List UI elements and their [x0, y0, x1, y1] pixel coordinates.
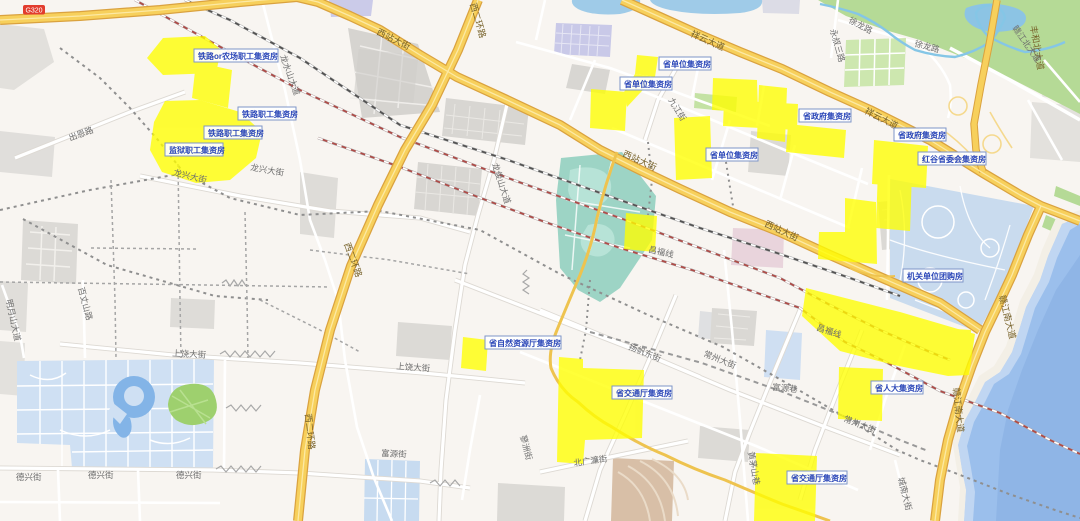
svg-text:德兴街: 德兴街	[88, 470, 114, 480]
svg-text:省政府集资房: 省政府集资房	[897, 130, 946, 140]
svg-text:德兴街: 德兴街	[176, 470, 202, 480]
svg-text:德兴街: 德兴街	[16, 472, 42, 482]
svg-text:省单位集资房: 省单位集资房	[709, 150, 758, 160]
svg-text:省人大集资房: 省人大集资房	[874, 383, 923, 393]
svg-text:富源街: 富源街	[381, 448, 407, 459]
svg-text:铁路职工集资房: 铁路职工集资房	[242, 109, 298, 119]
svg-text:红谷省委会集资房: 红谷省委会集资房	[922, 154, 986, 164]
svg-text:铁路or农场职工集资房: 铁路or农场职工集资房	[198, 51, 278, 61]
svg-text:省交通厅集资房: 省交通厅集资房	[615, 388, 672, 398]
svg-text:监狱职工集资房: 监狱职工集资房	[169, 145, 225, 155]
svg-text:铁路职工集资房: 铁路职工集资房	[208, 128, 264, 138]
svg-text:省交通厅集资房: 省交通厅集资房	[790, 473, 847, 483]
svg-text:省自然资源厅集资房: 省自然资源厅集资房	[488, 338, 561, 348]
svg-text:省单位集资房: 省单位集资房	[623, 79, 672, 89]
svg-text:上饶大街: 上饶大街	[172, 348, 207, 360]
svg-text:G320: G320	[25, 8, 42, 15]
svg-text:机关单位团购房: 机关单位团购房	[907, 271, 963, 281]
svg-text:省政府集资房: 省政府集资房	[802, 111, 851, 121]
svg-text:省单位集资房: 省单位集资房	[662, 59, 711, 69]
